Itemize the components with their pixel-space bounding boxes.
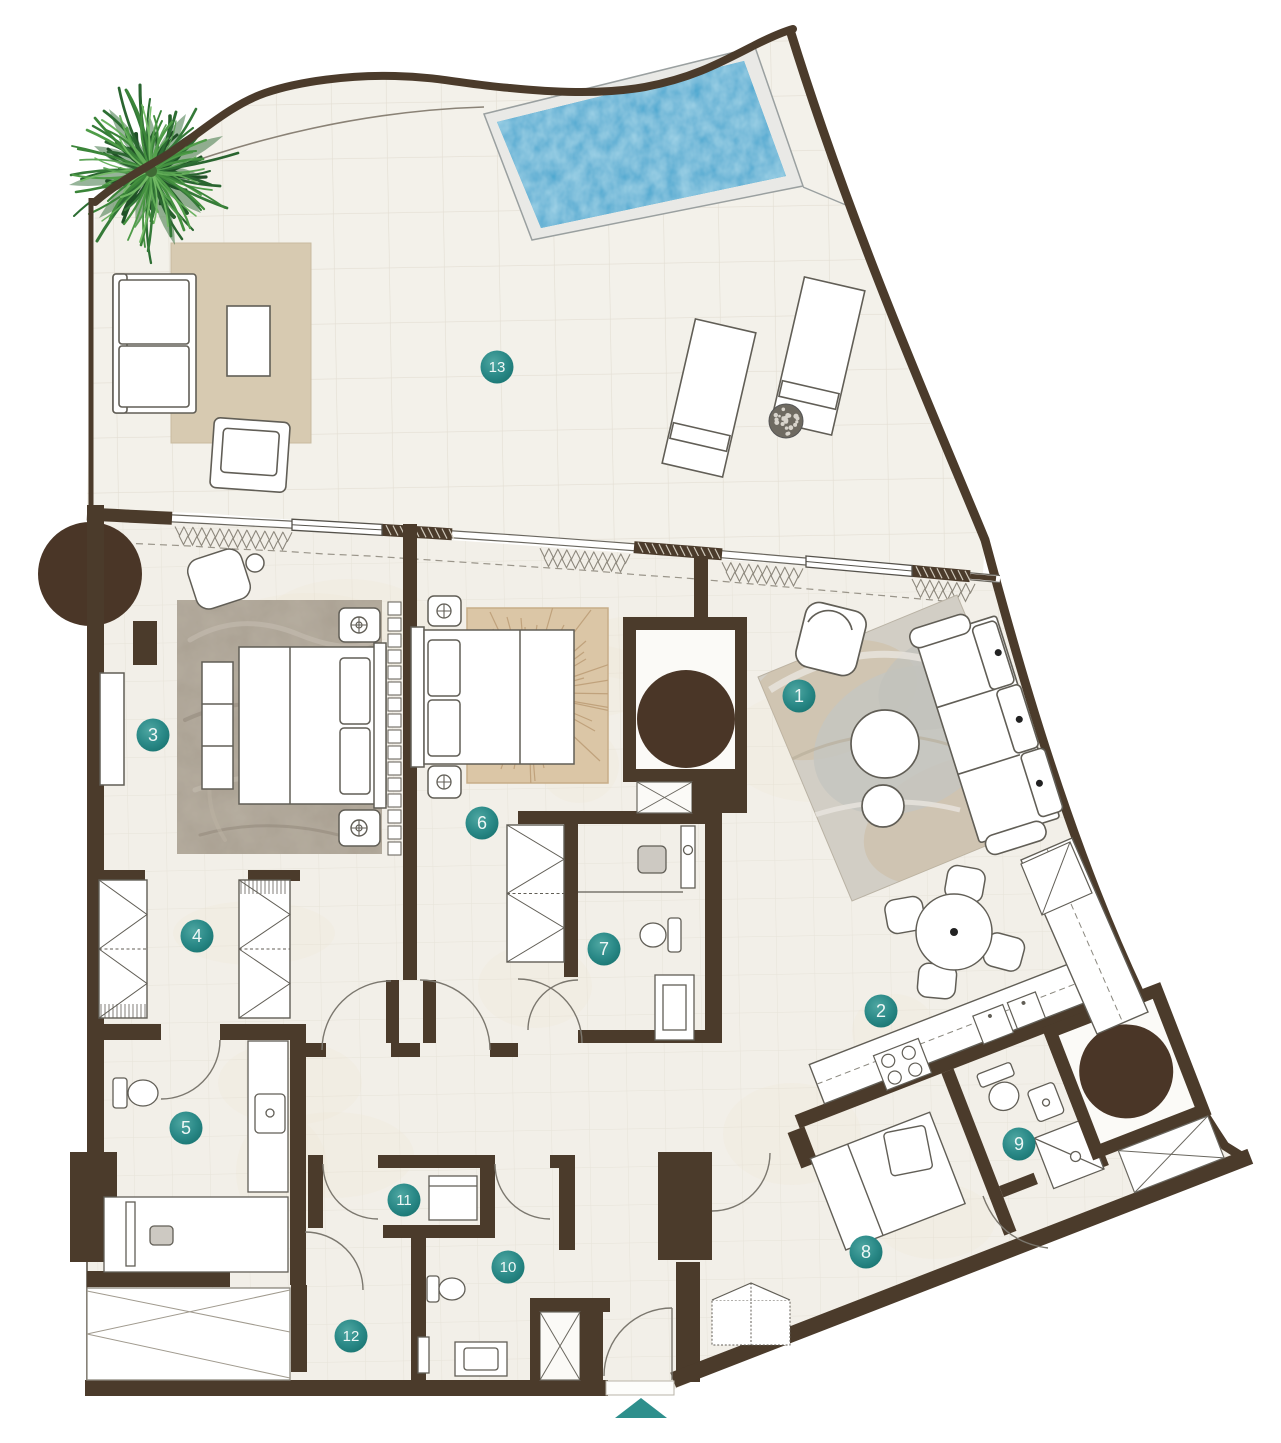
svg-text:2: 2 <box>876 1001 886 1021</box>
svg-text:7: 7 <box>599 939 609 959</box>
svg-text:3: 3 <box>148 725 158 745</box>
svg-text:4: 4 <box>192 926 202 946</box>
svg-text:8: 8 <box>861 1242 871 1262</box>
svg-text:13: 13 <box>489 359 506 376</box>
svg-text:5: 5 <box>181 1118 191 1138</box>
svg-text:11: 11 <box>396 1192 412 1209</box>
svg-text:6: 6 <box>477 813 487 833</box>
svg-text:1: 1 <box>794 686 804 706</box>
svg-text:10: 10 <box>500 1259 517 1276</box>
svg-text:9: 9 <box>1014 1134 1024 1154</box>
svg-text:12: 12 <box>343 1328 360 1345</box>
